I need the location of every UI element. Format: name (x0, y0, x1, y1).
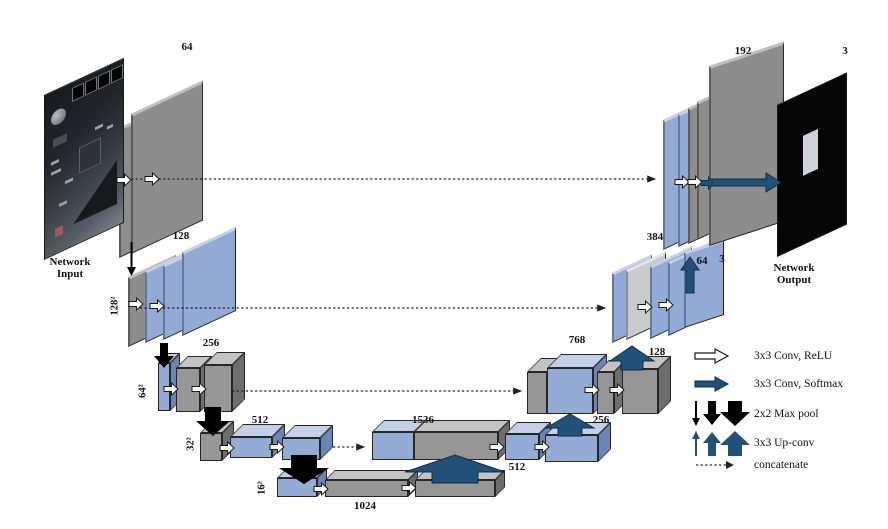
unet-architecture-diagram: 64 128 256 512 1024 128² 64² 32² 16² 512… (0, 0, 888, 529)
caption-line: Output (758, 274, 830, 286)
legend-label: concatenate (754, 459, 808, 471)
pcb-component (55, 225, 63, 238)
feature-map-sheet (709, 42, 784, 246)
feature-map-block (176, 368, 200, 412)
feature-map-block (204, 365, 232, 412)
feature-map-sheet (182, 227, 236, 336)
network-output-image (777, 72, 847, 257)
dotted-arrow-icon (692, 459, 754, 471)
pcb-component (51, 106, 66, 128)
channels-label: 3 (842, 45, 848, 57)
pcb-component (72, 82, 84, 102)
network-input-image (44, 58, 124, 260)
feature-map-sheet (684, 239, 724, 328)
spatial-size-label: 32² (186, 437, 197, 451)
feature-map-block (505, 434, 539, 460)
spatial-size-label: 64² (138, 384, 149, 398)
pcb-component (98, 70, 110, 90)
channels-label: 192 (735, 45, 752, 57)
legend-row-concatenate: concatenate (692, 459, 808, 471)
pcb-component (59, 200, 67, 207)
channels-label: 256 (203, 337, 220, 349)
channels-label: 1024 (354, 500, 376, 512)
legend-label: 3x3 Up-conv (754, 437, 814, 449)
pcb-component (51, 159, 59, 166)
feature-map-block (415, 480, 495, 497)
feature-map-block (325, 480, 408, 497)
black-down-arrows-icon (692, 399, 754, 429)
pcb-component (111, 64, 123, 84)
channels-label: 128 (173, 230, 190, 242)
feature-map-block (230, 437, 272, 458)
feature-map-block (200, 433, 222, 461)
channels-label: 256 (593, 414, 610, 426)
feature-map-sheet (131, 80, 203, 254)
caption-line: Input (38, 268, 102, 280)
feature-map-block (277, 478, 317, 497)
channels-label: 64 (697, 255, 708, 267)
network-input-caption: Network Input (38, 256, 102, 280)
channels-label: 512 (509, 461, 526, 473)
caption-line: Network (758, 262, 830, 274)
legend-label: 2x2 Max pool (754, 408, 819, 420)
pcb-component (79, 137, 101, 173)
spatial-size-label: 128² (110, 297, 121, 316)
channels-label: 128 (649, 346, 666, 358)
feature-map-block (372, 432, 414, 460)
channels-label: 512 (252, 414, 269, 426)
feature-map-block (158, 363, 170, 411)
feature-map-block (597, 372, 614, 414)
feature-map-block (414, 432, 498, 460)
network-output-caption: Network Output (758, 262, 830, 286)
channels-label: 1536 (412, 414, 434, 426)
spatial-size-label: 16² (257, 481, 268, 495)
pcb-component (107, 124, 113, 130)
blue-up-arrows-icon (692, 428, 754, 458)
pcb-component (85, 76, 97, 96)
channels-label: 3 (719, 253, 725, 265)
feature-map-block (527, 372, 547, 414)
feature-map-block (622, 369, 658, 414)
legend-row-conv-softmax: 3x3 Conv, Softmax (692, 375, 843, 393)
pcb-component (95, 123, 103, 130)
legend-label: 3x3 Conv, Softmax (754, 378, 843, 390)
caption-line: Network (38, 256, 102, 268)
feature-map-block (282, 438, 320, 460)
channels-label: 384 (647, 231, 664, 243)
pcb-component (53, 133, 67, 148)
pcb-component (51, 168, 61, 176)
channels-label: 768 (569, 334, 586, 346)
white-right-arrow-icon (692, 347, 754, 365)
feature-map-block (547, 368, 593, 414)
pcb-component (65, 177, 73, 184)
navy-right-arrow-icon (692, 375, 754, 393)
legend-row-upconv: 3x3 Up-conv (692, 428, 814, 458)
legend-label: 3x3 Conv, ReLU (754, 350, 832, 362)
channels-label: 64 (182, 41, 193, 53)
segmentation-mask (803, 129, 818, 176)
legend-row-maxpool: 2x2 Max pool (692, 399, 819, 429)
feature-map-block (545, 435, 598, 462)
legend-row-conv-relu: 3x3 Conv, ReLU (692, 347, 832, 365)
